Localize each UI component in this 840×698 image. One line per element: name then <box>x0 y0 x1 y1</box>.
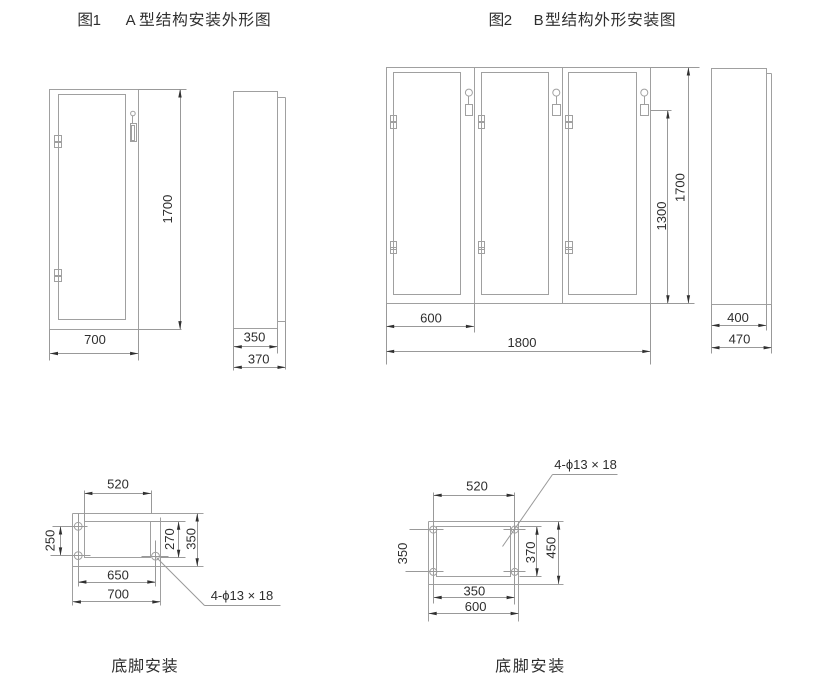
svg-text:250: 250 <box>42 530 57 552</box>
svg-text:350: 350 <box>464 583 486 598</box>
svg-text:650: 650 <box>107 567 129 582</box>
svg-text:520: 520 <box>107 477 129 492</box>
svg-text:270: 270 <box>162 528 177 550</box>
svg-text:600: 600 <box>465 599 487 614</box>
svg-text:1: 1 <box>93 12 101 29</box>
svg-text:1300: 1300 <box>654 202 669 231</box>
svg-text:2: 2 <box>504 12 512 29</box>
svg-text:4-ϕ13 × 18: 4-ϕ13 × 18 <box>211 588 274 603</box>
svg-text:350: 350 <box>244 330 266 345</box>
svg-text:370: 370 <box>523 542 538 564</box>
svg-text:1800: 1800 <box>508 335 537 350</box>
svg-text:1700: 1700 <box>160 195 175 224</box>
svg-text:520: 520 <box>466 479 488 494</box>
svg-text:B: B <box>534 12 544 29</box>
svg-text:A: A <box>126 12 136 29</box>
svg-text:350: 350 <box>183 528 198 550</box>
svg-text:350: 350 <box>395 543 410 565</box>
svg-text:600: 600 <box>420 311 442 326</box>
svg-text:450: 450 <box>544 537 559 559</box>
svg-text:700: 700 <box>84 332 106 347</box>
svg-text:470: 470 <box>729 332 751 347</box>
svg-text:700: 700 <box>107 586 129 601</box>
svg-text:400: 400 <box>727 310 749 325</box>
svg-text:370: 370 <box>248 352 270 367</box>
svg-text:1700: 1700 <box>673 173 688 202</box>
svg-text:4-ϕ13 × 18: 4-ϕ13 × 18 <box>554 457 617 472</box>
